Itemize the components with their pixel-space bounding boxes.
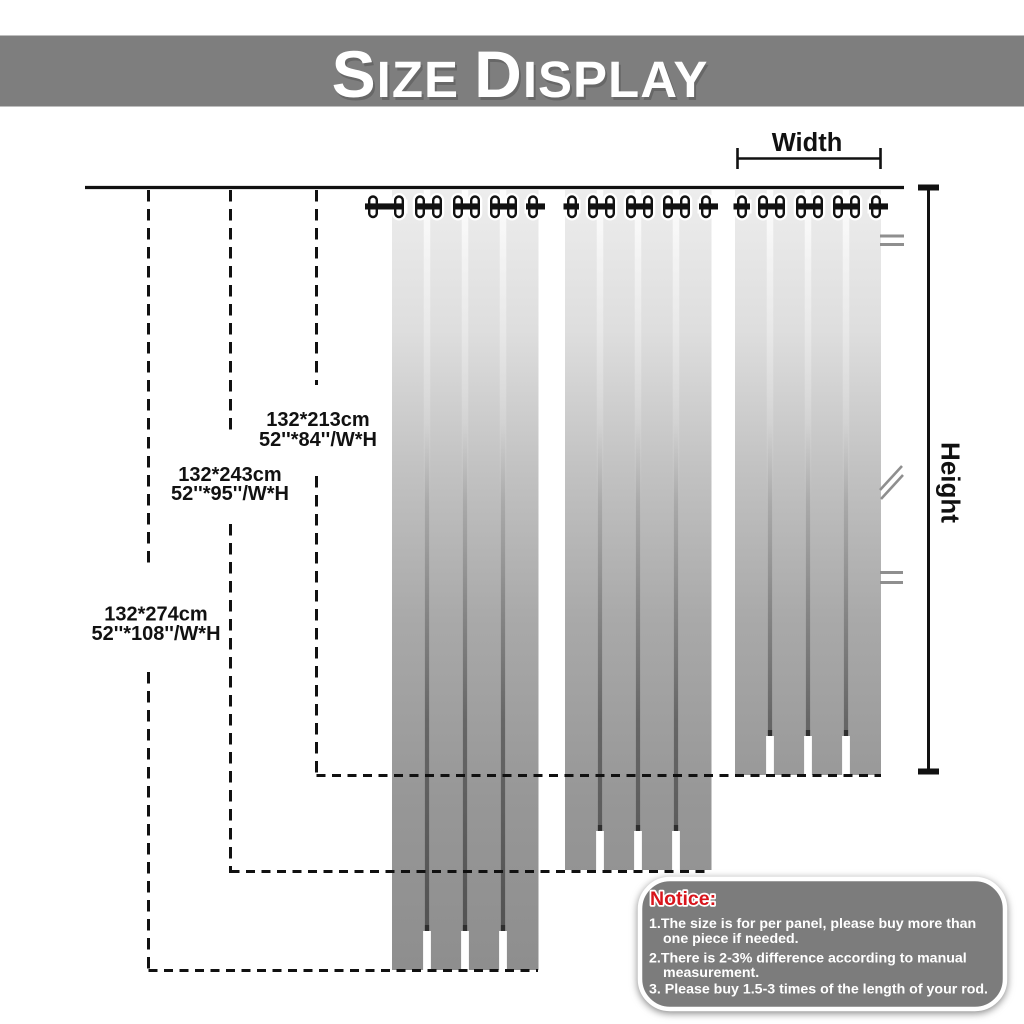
svg-text:52''*108''/W*H: 52''*108''/W*H <box>91 623 220 645</box>
svg-text:3. Please buy 1.5-3 times of t: 3. Please buy 1.5-3 times of the length … <box>649 982 988 998</box>
svg-text:1.The size is for per panel, p: 1.The size is for per panel, please buy … <box>649 916 976 932</box>
svg-text:Height: Height <box>936 442 966 523</box>
svg-text:measurement.: measurement. <box>663 965 759 981</box>
svg-text:one piece if needed.: one piece if needed. <box>663 931 799 947</box>
svg-text:132*213cm: 132*213cm <box>266 409 369 431</box>
svg-text:Width: Width <box>772 129 843 157</box>
svg-text:Notice:: Notice: <box>650 888 716 910</box>
svg-text:52''*84''/W*H: 52''*84''/W*H <box>259 429 377 451</box>
svg-text:52''*95''/W*H: 52''*95''/W*H <box>171 483 289 505</box>
